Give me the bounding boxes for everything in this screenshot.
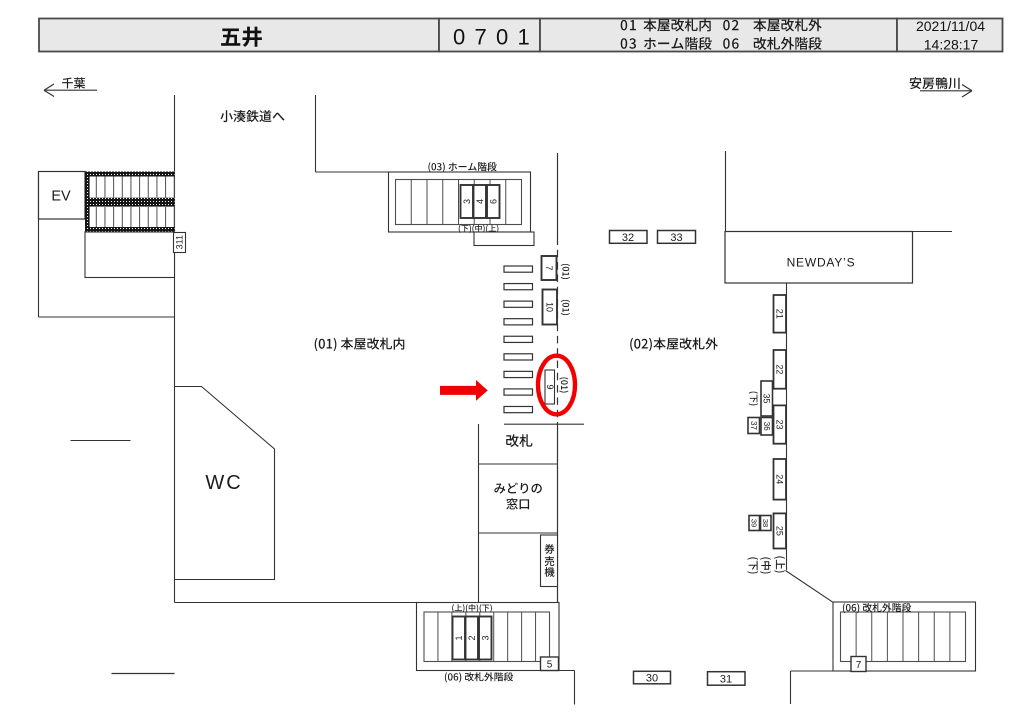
svg-text:2: 2 (467, 635, 477, 640)
svg-text:EV: EV (51, 189, 71, 205)
svg-text:35: 35 (762, 393, 772, 403)
svg-text:2021/11/04: 2021/11/04 (916, 18, 985, 34)
svg-text:14:28:17: 14:28:17 (924, 36, 979, 52)
svg-text:311: 311 (174, 235, 184, 249)
svg-text:9: 9 (545, 384, 555, 389)
svg-text:3: 3 (462, 199, 472, 204)
svg-text:5: 5 (547, 660, 553, 671)
svg-text:4: 4 (475, 199, 485, 204)
svg-text:31: 31 (720, 673, 732, 685)
svg-text:30: 30 (646, 672, 658, 684)
svg-text:39: 39 (750, 519, 759, 527)
svg-text:1: 1 (454, 635, 464, 640)
svg-text:38: 38 (761, 519, 770, 527)
svg-text:7: 7 (544, 265, 554, 270)
svg-text:0701: 0701 (453, 24, 539, 49)
svg-text:10: 10 (545, 302, 555, 312)
svg-text:33: 33 (670, 232, 682, 244)
svg-text:21: 21 (775, 309, 785, 319)
svg-text:32: 32 (622, 232, 634, 244)
svg-text:37: 37 (749, 421, 758, 430)
svg-text:7: 7 (856, 660, 862, 671)
svg-text:24: 24 (775, 474, 785, 484)
svg-text:25: 25 (775, 526, 785, 536)
svg-text:WC: WC (205, 472, 242, 494)
svg-text:23: 23 (775, 420, 785, 430)
svg-text:22: 22 (775, 364, 785, 374)
svg-text:3: 3 (481, 635, 491, 640)
svg-text:6: 6 (489, 199, 499, 204)
svg-text:36: 36 (762, 422, 771, 431)
svg-text:NEWDAY’S: NEWDAY’S (787, 256, 856, 270)
